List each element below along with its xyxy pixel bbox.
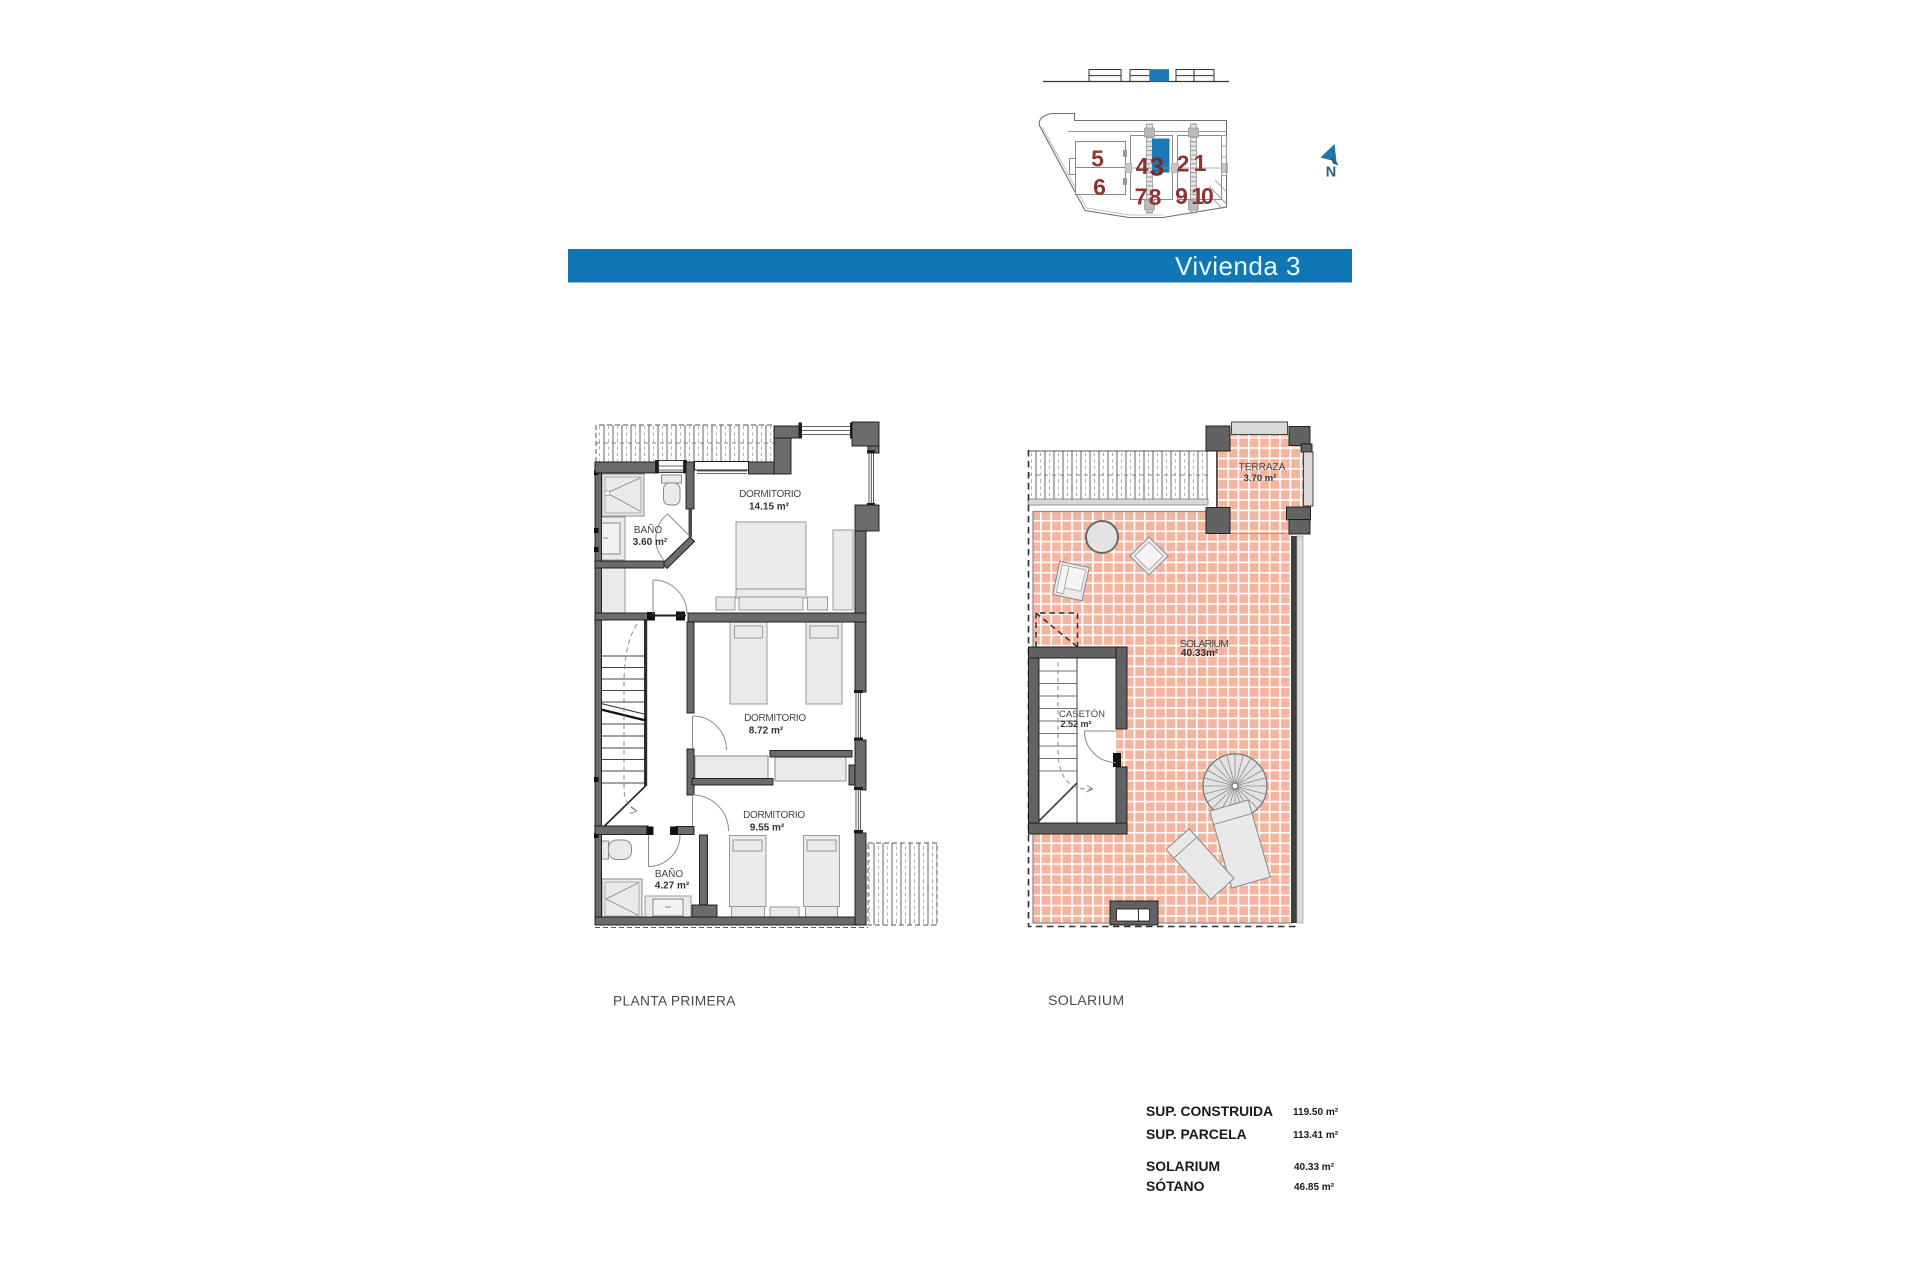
svg-text:3.70 m²: 3.70 m² — [1244, 473, 1277, 484]
svg-text:6: 6 — [1093, 174, 1106, 200]
svg-text:40.33 m²: 40.33 m² — [1294, 1162, 1335, 1173]
svg-text:119.50 m²: 119.50 m² — [1293, 1107, 1339, 1118]
svg-text:10: 10 — [1191, 183, 1213, 209]
svg-text:DORMITORIO: DORMITORIO — [744, 713, 806, 724]
svg-text:DORMITORIO: DORMITORIO — [739, 489, 801, 500]
svg-text:N: N — [1326, 165, 1336, 181]
svg-text:DORMITORIO: DORMITORIO — [743, 810, 805, 821]
svg-text:SOLARIUM: SOLARIUM — [1048, 993, 1125, 1009]
svg-text:BAÑO: BAÑO — [655, 867, 684, 880]
svg-text:3: 3 — [1150, 152, 1164, 182]
svg-text:1: 1 — [1194, 150, 1207, 176]
svg-text:3.60 m²: 3.60 m² — [633, 537, 668, 548]
svg-text:BAÑO: BAÑO — [634, 523, 663, 536]
svg-text:Vivienda 3: Vivienda 3 — [1175, 251, 1301, 281]
svg-text:7: 7 — [1135, 184, 1148, 210]
svg-text:5: 5 — [1091, 146, 1104, 172]
svg-text:8: 8 — [1149, 184, 1162, 210]
svg-text:TERRAZA: TERRAZA — [1239, 462, 1286, 473]
svg-text:46.85 m²: 46.85 m² — [1294, 1182, 1335, 1193]
svg-text:113.41 m²: 113.41 m² — [1293, 1130, 1339, 1141]
svg-text:SUP. CONSTRUIDA: SUP. CONSTRUIDA — [1146, 1103, 1273, 1119]
svg-text:2: 2 — [1177, 151, 1190, 177]
svg-text:8.72 m²: 8.72 m² — [749, 726, 784, 737]
svg-text:14.15 m²: 14.15 m² — [749, 502, 790, 513]
svg-text:SUP. PARCELA: SUP. PARCELA — [1146, 1126, 1247, 1142]
svg-text:SOLARIUM: SOLARIUM — [1146, 1158, 1220, 1174]
svg-text:9: 9 — [1175, 183, 1188, 209]
svg-text:2.52 m²: 2.52 m² — [1060, 719, 1091, 729]
svg-text:4.27 m²: 4.27 m² — [655, 881, 690, 892]
svg-text:9.55 m²: 9.55 m² — [750, 823, 785, 834]
svg-text:SÓTANO: SÓTANO — [1146, 1177, 1205, 1194]
svg-text:PLANTA PRIMERA: PLANTA PRIMERA — [613, 994, 736, 1009]
svg-text:4: 4 — [1136, 153, 1149, 179]
svg-text:40.33m²: 40.33m² — [1181, 648, 1219, 659]
